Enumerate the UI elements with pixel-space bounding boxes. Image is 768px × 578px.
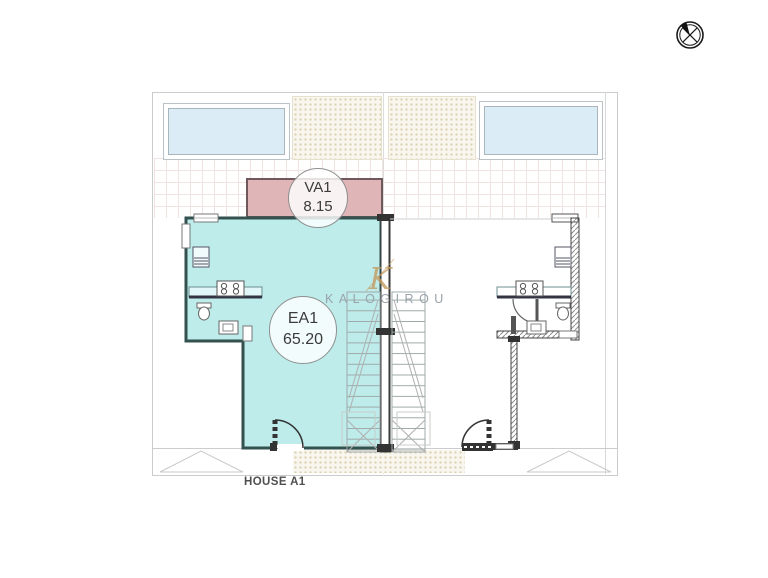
stove-symbol-right <box>516 281 543 296</box>
entrance-door-right <box>462 420 493 451</box>
window-north-left <box>194 214 218 222</box>
plan-linework: K <box>0 0 768 578</box>
sink-symbol-right <box>527 321 546 334</box>
plan-title: HOUSE A1 <box>244 476 306 488</box>
fridge-symbol-left <box>193 247 209 267</box>
staircase-left <box>342 292 380 452</box>
staircase-right <box>392 292 430 452</box>
driveway-triangle-left <box>160 451 243 472</box>
room-label-ea1: EA1 65.20 <box>269 296 337 364</box>
room-area-va1: 8.15 <box>289 198 347 217</box>
toilet-symbol-left <box>197 303 211 320</box>
driveway-triangle-right <box>527 451 611 472</box>
room-code-va1: VA1 <box>289 179 347 198</box>
window-step-corner-left <box>243 326 252 341</box>
window-west-left <box>182 224 190 248</box>
room-area-ea1: 65.20 <box>270 330 336 351</box>
stove-symbol-left <box>217 281 244 296</box>
brand-watermark: KALOGIROU <box>325 292 445 306</box>
north-arrow-icon <box>677 22 703 48</box>
room-label-va1: VA1 8.15 <box>288 168 348 228</box>
interior-door-right <box>513 299 537 323</box>
sink-symbol-left <box>219 321 238 334</box>
floor-plan-canvas: K VA1 8.15 EA1 65.20 KALOGIROU HOUSE A1 <box>0 0 768 578</box>
fridge-symbol-right <box>555 247 571 267</box>
toilet-symbol-right <box>556 303 570 320</box>
room-code-ea1: EA1 <box>270 309 336 330</box>
